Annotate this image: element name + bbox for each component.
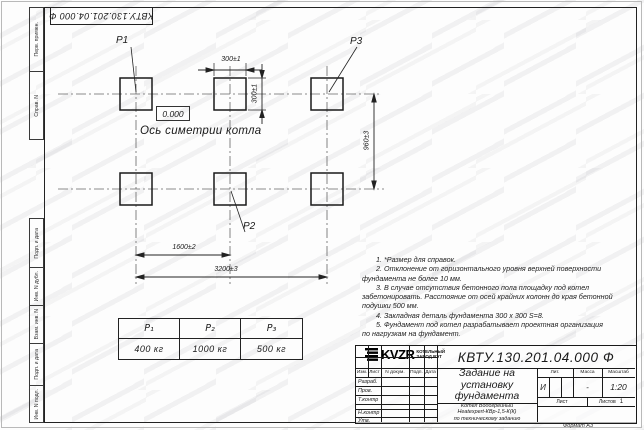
load-table-value: 1000 кг [180,339,241,359]
stamp-line [561,377,562,397]
dim-row-spacing: 960±3 [364,111,371,171]
note-line: забетонировать. Расстояние от осей крайн… [362,292,638,301]
drawing-sheet: { "frame": { "docnum_top": "КВТУ.130.201… [0,0,644,430]
stamp-row-razrab: Разраб. [356,377,383,386]
stamp-col-ndokum: N докум. [381,368,409,377]
load-table: P₁ P₂ P₃ 400 кг 1000 кг 500 кг [118,318,303,360]
foundation-pads [120,78,343,205]
notes-block: 1. *Размер для справок. 2. Отклонение от… [362,255,638,339]
point-label-p3: P3 [350,36,362,47]
note-line: фундамента не более 10 мм. [362,274,638,283]
stamp-col-list: Лист [368,368,381,377]
stamp-row-utv: Утв. [356,417,383,424]
note-line: 2. Отклонение от горизонтального уровня … [362,264,638,273]
stamp-mass-value: - [573,377,602,397]
load-table-header: P₃ [241,319,302,339]
stamp-line [356,404,437,405]
stamp-row-prov: Пров. [356,386,383,395]
title-block: КВТУ.130.201.04.000 Ф Изм. Лист N докум.… [355,345,637,424]
stamp-product: Котел Водогрейный Heatexpert-КВр-1,5-К(К… [437,403,537,422]
load-table-value: 500 кг [241,339,302,359]
note-line: по нагрузкам на фундамент. [362,329,638,338]
point-label-p1: P1 [116,35,128,46]
note-line: 3. В случае отсутствия бетонного пола пл… [362,283,638,292]
stamp-col-izm: Изм. [356,368,368,377]
note-line: 1. *Размер для справок. [362,255,638,264]
boiler-symmetry-axis-label: Ось симетрии котла [140,125,262,137]
stamp-row-nkontr: Н.контр [356,409,383,417]
format-label: Формат А3 [518,423,638,429]
centerlines [58,66,384,284]
stamp-sheets-value: 1 [620,399,623,405]
stamp-line [537,406,635,407]
elevation-mark: 0.000 [156,106,190,121]
dim-top-width: 300±1 [201,56,261,63]
stamp-title: Задание на установку фундамента [437,368,537,403]
stamp-product-line: по техническому заданию [454,416,521,422]
stamp-row-tkontr: Т.контр [356,395,383,404]
note-line: 4. Закладная деталь фундамента 300 x 300… [362,311,638,320]
stamp-sheets-label: Листов [599,399,616,405]
stamp-scale-value: 1:20 [602,377,635,397]
stamp-doc-number: КВТУ.130.201.04.000 Ф [437,346,635,368]
note-line: 5. Фундамент под котел разрабатывает про… [362,320,638,329]
stamp-line [549,377,550,397]
stamp-sheet-label: Лист [537,397,587,406]
stamp-sheets-cell: Листов 1 [587,397,635,406]
dim-top-height: 300±1 [252,64,259,124]
load-table-header: P₁ [119,319,180,339]
stamp-scale-label: Масштаб [602,368,635,377]
stamp-line [356,357,437,358]
load-table-header: P₂ [180,319,241,339]
stamp-lit-value: И [537,377,549,397]
note-line: подушки 500 мм. [362,301,638,310]
stamp-col-podp: Подп. [409,368,424,377]
stamp-lit-label: Лит. [537,368,573,377]
stamp-title-line: фундамента [455,391,520,403]
stamp-col-data: Дата [424,368,437,377]
stamp-mass-label: Масса [573,368,602,377]
load-table-value: 400 кг [119,339,180,359]
dim-half-span: 1600±2 [154,244,214,251]
dim-full-span: 3200±3 [196,266,256,273]
point-label-p2: P2 [243,221,255,232]
